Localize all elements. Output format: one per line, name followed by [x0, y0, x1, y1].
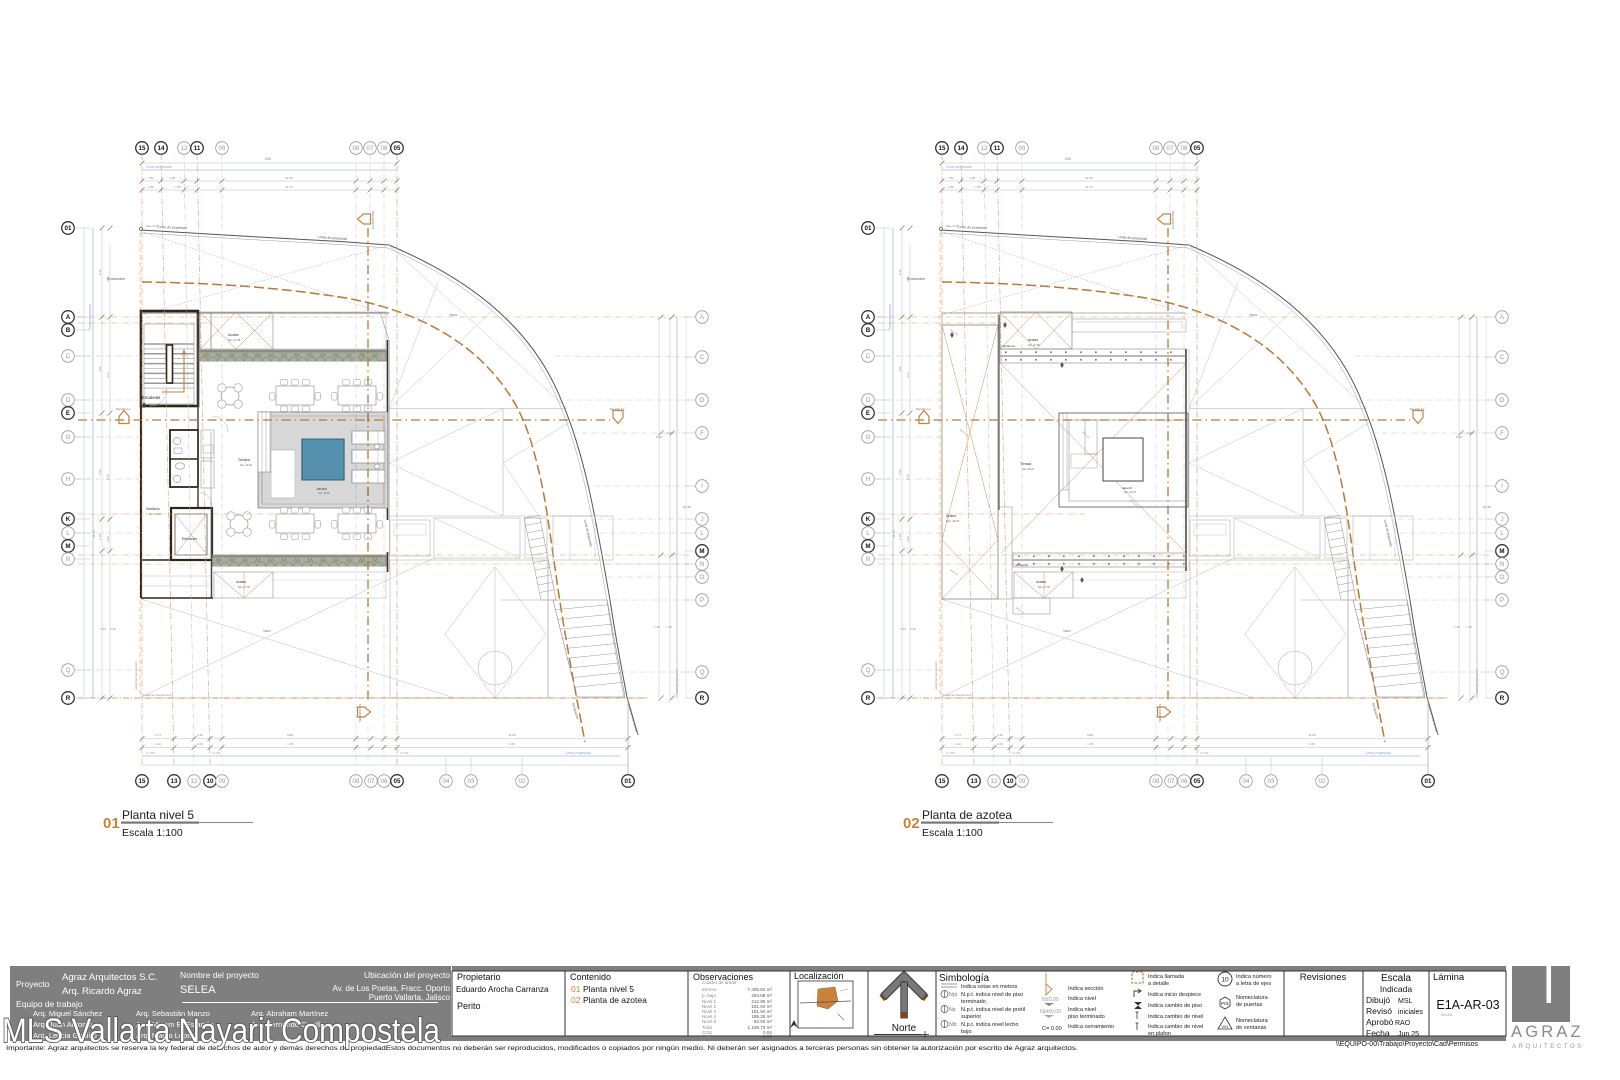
svg-text:1.56: 1.56	[148, 185, 154, 189]
svg-text:09: 09	[219, 145, 226, 152]
svg-text:Jacuzzi: Jacuzzi	[1122, 486, 1132, 490]
svg-text:Elevador: Elevador	[182, 537, 198, 541]
svg-text:H: H	[66, 476, 70, 483]
svg-text:Escala 1:100: Escala 1:100	[122, 827, 183, 839]
svg-text:2.20: 2.20	[906, 536, 910, 542]
svg-text:Jardinera: Jardinera	[1002, 344, 1015, 348]
svg-text:SELEA: SELEA	[180, 984, 216, 996]
svg-text:V01: V01	[1221, 1024, 1229, 1029]
svg-text:Revisiones: Revisiones	[1300, 972, 1347, 983]
svg-text:Indica número: Indica número	[1236, 974, 1271, 980]
svg-text:N.p.t. indica nivel lecho: N.p.t. indica nivel lecho	[961, 1022, 1019, 1028]
svg-text:J: J	[700, 516, 703, 523]
svg-text:Npt +16.20: Npt +16.20	[149, 513, 161, 516]
svg-text:G: G	[866, 434, 871, 441]
svg-text:R: R	[1500, 695, 1505, 702]
svg-text:R: R	[66, 695, 71, 702]
svg-text:Indica cotas en metros: Indica cotas en metros	[961, 984, 1017, 990]
svg-text:M: M	[865, 543, 870, 550]
svg-text:1.71: 1.71	[955, 733, 961, 737]
svg-text:Puerto Vallarta, Jalisco: Puerto Vallarta, Jalisco	[369, 993, 451, 1002]
svg-text:Lámina: Lámina	[1433, 972, 1465, 983]
svg-text:4.67: 4.67	[106, 276, 110, 282]
svg-text:Npt +16.20: Npt +16.20	[1022, 468, 1034, 471]
svg-text:01: 01	[65, 225, 72, 232]
svg-text:08: 08	[353, 145, 360, 152]
svg-text:L: L	[1500, 530, 1504, 537]
svg-text:F: F	[1500, 430, 1504, 437]
svg-text:11: 11	[994, 145, 1001, 152]
svg-text:1.78: 1.78	[287, 742, 293, 746]
svg-text:Npt: Npt	[949, 992, 958, 998]
svg-text:P: P	[1500, 597, 1504, 604]
svg-text:Revisó: Revisó	[1366, 1006, 1392, 1016]
svg-text:Equipo de trabajo: Equipo de trabajo	[16, 999, 83, 1009]
svg-text:terreno: terreno	[702, 987, 717, 992]
svg-text:J: J	[1500, 516, 1503, 523]
svg-text:Localización: Localización	[794, 971, 844, 981]
svg-text:de puertas: de puertas	[1236, 1002, 1263, 1008]
svg-text:A: A	[866, 314, 871, 321]
svg-text:5.31: 5.31	[898, 269, 902, 275]
svg-text:Linde de intervención: Linde de intervención	[943, 693, 972, 697]
svg-text:Npm +20.05: Npm +20.05	[946, 520, 960, 523]
svg-text:4.55: 4.55	[898, 366, 902, 372]
svg-text:9.95: 9.95	[287, 733, 293, 737]
svg-text:N: N	[866, 556, 870, 563]
svg-text:10: 10	[207, 778, 214, 785]
svg-text:Cotas progresivas: Cotas progresivas	[888, 304, 892, 330]
svg-text:12: 12	[191, 778, 198, 785]
svg-text:5.85: 5.85	[265, 157, 271, 161]
svg-text:F: F	[700, 430, 704, 437]
svg-text:09: 09	[219, 778, 226, 785]
svg-text:superior: superior	[961, 1014, 981, 1020]
svg-text:Npt +16.05: Npt +16.05	[318, 492, 330, 495]
svg-text:B: B	[66, 327, 71, 334]
svg-text:15: 15	[939, 778, 946, 785]
svg-text:p. baja: p. baja	[702, 993, 716, 998]
svg-text:I: I	[701, 483, 703, 490]
svg-text:Fecha: Fecha	[1366, 1028, 1390, 1038]
svg-text:H: H	[866, 476, 870, 483]
svg-text:N.p.t. indica nivel de pretil: N.p.t. indica nivel de pretil	[961, 1007, 1025, 1013]
svg-text:08: 08	[1153, 778, 1160, 785]
svg-text:Propietario: Propietario	[457, 972, 501, 982]
svg-text:7.46: 7.46	[900, 627, 906, 631]
svg-text:Vacío: Vacío	[1249, 313, 1258, 317]
svg-text:1.54: 1.54	[175, 185, 181, 189]
svg-text:Npt±0.00: Npt±0.00	[1040, 1009, 1061, 1015]
svg-text:B: B	[866, 327, 871, 334]
svg-text:Cotas progresivas: Cotas progresivas	[1365, 751, 1391, 755]
svg-text:MSL: MSL	[1398, 998, 1413, 1005]
svg-text:Perito: Perito	[457, 1001, 481, 1011]
svg-text:14: 14	[958, 145, 965, 152]
svg-text:O: O	[1500, 574, 1505, 581]
svg-text:N±0.00: N±0.00	[1042, 997, 1059, 1003]
svg-text:15: 15	[939, 145, 946, 152]
svg-text:13: 13	[171, 778, 178, 785]
svg-text:1.39: 1.39	[98, 534, 102, 540]
svg-text:C: C	[866, 353, 871, 360]
svg-text:5.31: 5.31	[98, 269, 102, 275]
svg-text:Norte: Norte	[892, 1023, 917, 1034]
svg-text:Escaleras: Escaleras	[142, 395, 160, 400]
svg-text:Nivel 5: Nivel 5	[702, 1019, 716, 1024]
svg-text:06: 06	[381, 778, 388, 785]
svg-text:L: L	[700, 530, 704, 537]
svg-text:K: K	[866, 516, 871, 523]
svg-text:Planta de azotea: Planta de azotea	[922, 808, 1012, 822]
svg-text:1.12: 1.12	[955, 742, 961, 746]
svg-text:N: N	[1500, 561, 1504, 568]
svg-text:2.19: 2.19	[197, 733, 203, 737]
svg-text:Terraza: Terraza	[238, 458, 250, 462]
svg-text:ARQUITECTOS: ARQUITECTOS	[1512, 1044, 1584, 1050]
svg-text:7.46: 7.46	[666, 625, 672, 629]
svg-text:Sección s-s: Sección s-s	[916, 407, 931, 411]
svg-text:M: M	[1499, 548, 1504, 555]
svg-text:13: 13	[971, 778, 978, 785]
svg-text:09: 09	[1019, 778, 1026, 785]
svg-text:9.31: 9.31	[667, 431, 673, 435]
svg-text:N: N	[66, 556, 70, 563]
svg-text:27.046: 27.046	[400, 751, 409, 755]
svg-text:D: D	[866, 397, 871, 404]
svg-text:Sección s-s: Sección s-s	[116, 407, 131, 411]
svg-text:RAO: RAO	[1395, 1020, 1411, 1027]
svg-text:MLS Vallarta Nayarit Compostel: MLS Vallarta Nayarit Compostela	[2, 1012, 440, 1050]
svg-text:en plafon: en plafon	[1148, 1031, 1171, 1037]
svg-text:11.73: 11.73	[285, 185, 293, 189]
svg-text:7.46: 7.46	[1454, 625, 1460, 629]
svg-text:M: M	[65, 543, 70, 550]
svg-text:1.50: 1.50	[169, 176, 175, 180]
svg-text:15: 15	[139, 778, 146, 785]
svg-text:4.55: 4.55	[98, 366, 102, 372]
svg-text:Npt +17.55: Npt +17.55	[228, 339, 241, 342]
svg-text:Azotea: Azotea	[1036, 580, 1046, 584]
svg-text:Azotea: Azotea	[946, 514, 956, 518]
svg-text:Escala: Escala	[1381, 973, 1411, 984]
svg-text:Nomeclatura: Nomeclatura	[1236, 995, 1269, 1001]
svg-text:1.56: 1.56	[948, 185, 954, 189]
svg-text:11.05: 11.05	[1308, 733, 1316, 737]
svg-text:terminado: terminado	[961, 999, 986, 1005]
svg-text:Planta nivel 5: Planta nivel 5	[122, 808, 194, 822]
svg-text:11: 11	[194, 145, 201, 152]
svg-text:2.00: 2.00	[197, 742, 203, 746]
svg-text:01: 01	[625, 778, 632, 785]
svg-text:Terraza: Terraza	[1020, 462, 1031, 466]
svg-text:SECCIÓN S-S: SECCIÓN S-S	[1171, 211, 1176, 229]
svg-text:E: E	[66, 410, 70, 417]
svg-text:a letra de ejes: a letra de ejes	[1236, 981, 1271, 987]
svg-text:8.45: 8.45	[1309, 742, 1315, 746]
svg-text:Planta de azotea: Planta de azotea	[583, 995, 647, 1005]
svg-text:7.46: 7.46	[110, 627, 116, 631]
svg-text:a detalle: a detalle	[1148, 981, 1169, 987]
svg-text:Vacío: Vacío	[449, 313, 458, 317]
svg-text:1.52: 1.52	[948, 176, 954, 180]
svg-text:N: N	[700, 561, 704, 568]
svg-text:Vacío: Vacío	[263, 629, 271, 633]
svg-text:Q: Q	[866, 667, 871, 674]
svg-text:Cotas progresivas: Cotas progresivas	[88, 304, 92, 330]
svg-text:12: 12	[181, 145, 188, 152]
svg-text:21.486: 21.486	[1012, 751, 1021, 755]
svg-text:Proyecto: Proyecto	[16, 979, 50, 989]
svg-text:10: 10	[1221, 977, 1229, 984]
svg-text:14: 14	[158, 145, 165, 152]
svg-text:R: R	[866, 695, 871, 702]
svg-text:07: 07	[1167, 145, 1174, 152]
svg-text:E1A-AR-03: E1A-AR-03	[1436, 998, 1499, 1012]
svg-text:15: 15	[139, 145, 146, 152]
svg-text:02: 02	[571, 995, 581, 1005]
svg-text:AGRAZ: AGRAZ	[1511, 1023, 1584, 1041]
svg-text:01: 01	[1425, 778, 1432, 785]
svg-text:Azotea: Azotea	[228, 333, 239, 337]
svg-text:Eduardo Arocha Carranza: Eduardo Arocha Carranza	[456, 985, 549, 994]
svg-text:Cotas progresivas: Cotas progresivas	[565, 751, 591, 755]
svg-text:Npt +16.20: Npt +16.20	[240, 464, 252, 467]
svg-text:01: 01	[103, 815, 120, 832]
svg-text:Npt +16.15: Npt +16.15	[1124, 491, 1136, 494]
svg-text:Ubicación del proyecto: Ubicación del proyecto	[364, 970, 450, 980]
svg-text:Agraz Arquitectos S.C.: Agraz Arquitectos S.C.	[62, 972, 158, 983]
svg-text:11.06: 11.06	[285, 176, 293, 180]
svg-text:11.06: 11.06	[1085, 176, 1093, 180]
svg-text:Aprobó: Aprobó	[1366, 1017, 1394, 1027]
svg-text:Q: Q	[1500, 669, 1505, 676]
svg-text:12: 12	[991, 778, 998, 785]
svg-text:23.48: 23.48	[683, 505, 691, 509]
svg-text:Dibujó: Dibujó	[1366, 995, 1390, 1005]
svg-text:Cotas progresivas: Cotas progresivas	[946, 165, 972, 169]
svg-text:Escala 1:100: Escala 1:100	[922, 827, 983, 839]
svg-text:08: 08	[353, 778, 360, 785]
svg-text:06: 06	[381, 145, 388, 152]
svg-text:Indica cambio de nivel: Indica cambio de nivel	[1148, 1014, 1203, 1020]
svg-text:7.46: 7.46	[100, 627, 106, 631]
svg-text:1.54: 1.54	[975, 185, 981, 189]
svg-text:9.95: 9.95	[1087, 733, 1093, 737]
svg-text:12: 12	[981, 145, 988, 152]
svg-text:Indica cambio de nivel: Indica cambio de nivel	[1148, 1024, 1203, 1030]
svg-text:Vacío: Vacío	[1063, 629, 1071, 633]
svg-text:Indica nivel: Indica nivel	[1068, 1007, 1096, 1013]
svg-text:Linde de intervención: Linde de intervención	[134, 661, 138, 690]
svg-text:10: 10	[1007, 778, 1014, 785]
svg-text:D: D	[1500, 397, 1505, 404]
svg-text:06: 06	[1181, 778, 1188, 785]
svg-text:6.40: 6.40	[106, 474, 110, 480]
svg-text:01: 01	[865, 225, 872, 232]
svg-text:7.46: 7.46	[654, 625, 660, 629]
svg-text:2.19: 2.19	[997, 733, 1003, 737]
svg-text:Indica cerramiento: Indica cerramiento	[1068, 1024, 1114, 1030]
svg-text:06: 06	[1181, 145, 1188, 152]
svg-text:07: 07	[368, 778, 375, 785]
svg-text:L: L	[866, 530, 870, 537]
svg-text:52.92 m²: 52.92 m²	[754, 1019, 773, 1024]
svg-text:17.366: 17.366	[946, 751, 955, 755]
svg-text:Cotas progresivas: Cotas progresivas	[675, 669, 679, 695]
svg-text:02: 02	[1319, 778, 1326, 785]
svg-text:1.71: 1.71	[155, 733, 161, 737]
svg-text:R: R	[700, 695, 705, 702]
svg-text:C: C	[1500, 354, 1505, 361]
svg-text:Indica nivel: Indica nivel	[1068, 996, 1096, 1002]
svg-text:de ventanas: de ventanas	[1236, 1025, 1267, 1031]
svg-text:1.39: 1.39	[898, 534, 902, 540]
svg-text:G: G	[66, 434, 71, 441]
svg-text:2.00: 2.00	[997, 742, 1003, 746]
svg-text:26.46: 26.46	[892, 530, 896, 538]
svg-text:Q: Q	[700, 669, 705, 676]
svg-text:CUS: CUS	[702, 1034, 712, 1039]
svg-text:Cotas progresivas: Cotas progresivas	[146, 165, 172, 169]
svg-text:1.12: 1.12	[155, 742, 161, 746]
svg-text:9.42: 9.42	[1456, 435, 1462, 439]
svg-text:SECCIÓN S-S: SECCIÓN S-S	[371, 211, 376, 229]
svg-text:Contenido: Contenido	[570, 972, 611, 982]
svg-text:17.366: 17.366	[146, 751, 155, 755]
svg-text:5.85: 5.85	[1065, 157, 1071, 161]
svg-text:C: C	[700, 354, 705, 361]
svg-text:Planta nivel 5: Planta nivel 5	[583, 984, 634, 994]
svg-text:08: 08	[1153, 145, 1160, 152]
svg-text:7.46: 7.46	[1466, 625, 1472, 629]
svg-text:02: 02	[519, 778, 526, 785]
svg-text:Sección s-s: Sección s-s	[610, 407, 625, 411]
svg-text:Simbología: Simbología	[939, 973, 989, 984]
svg-text:Cuadro de áreas: Cuadro de áreas	[702, 980, 737, 985]
svg-text:4.67: 4.67	[906, 276, 910, 282]
svg-text:21.486: 21.486	[212, 751, 221, 755]
svg-text:piso terminado: piso terminado	[1068, 1014, 1105, 1020]
svg-text:Vestíbulo: Vestíbulo	[146, 507, 160, 511]
svg-text:Linde de intervención: Linde de intervención	[934, 661, 938, 690]
svg-text:11.73: 11.73	[1085, 185, 1093, 189]
svg-text:D: D	[66, 397, 71, 404]
svg-text:Q: Q	[66, 667, 71, 674]
svg-text:04: 04	[443, 778, 450, 785]
svg-text:SECCIÓN S-S: SECCIÓN S-S	[1157, 704, 1162, 722]
svg-text:04: 04	[1243, 778, 1250, 785]
svg-text:07: 07	[1168, 778, 1175, 785]
svg-text:05: 05	[394, 778, 401, 785]
svg-text:P: P	[700, 597, 704, 604]
svg-text:Npt +17.55: Npt +17.55	[1038, 586, 1050, 589]
svg-text:C: C	[66, 353, 71, 360]
svg-text:Arq. Ricardo Agraz: Arq. Ricardo Agraz	[62, 986, 142, 997]
svg-text:Jacuzzi: Jacuzzi	[316, 487, 327, 491]
svg-text:4.67: 4.67	[106, 372, 110, 378]
svg-text:Indicada: Indicada	[1380, 984, 1412, 994]
svg-text:23.48: 23.48	[1483, 505, 1491, 509]
svg-text:05: 05	[394, 145, 401, 152]
svg-text:2.20: 2.20	[106, 536, 110, 542]
svg-text:07: 07	[367, 145, 374, 152]
svg-text:03: 03	[1268, 778, 1275, 785]
svg-text:L: L	[66, 530, 70, 537]
svg-text:SECCIÓN S-S: SECCIÓN S-S	[357, 704, 362, 722]
svg-text:O: O	[700, 574, 705, 581]
svg-text:9.42: 9.42	[656, 435, 662, 439]
svg-text:Nlb: Nlb	[949, 1022, 957, 1028]
svg-text:Indica cambio de piso: Indica cambio de piso	[1148, 1003, 1202, 1009]
svg-text:SELEA: SELEA	[1441, 1013, 1453, 1017]
svg-text:1.78: 1.78	[1087, 742, 1093, 746]
svg-text:\\EQUIPO-00\Trabajo\Proyecto\C: \\EQUIPO-00\Trabajo\Proyecto\Cad\Permiso…	[1336, 1041, 1479, 1048]
svg-text:03: 03	[468, 778, 475, 785]
svg-text:294.68 m²: 294.68 m²	[751, 993, 772, 998]
svg-text:Indica llamada: Indica llamada	[1148, 974, 1185, 980]
svg-text:I: I	[1501, 483, 1503, 490]
svg-text:Nombre del proyecto: Nombre del proyecto	[180, 970, 259, 980]
svg-text:iniciales: iniciales	[1398, 1009, 1423, 1016]
svg-text:Jardinera: Jardinera	[1015, 563, 1028, 567]
svg-text:Sección s-s: Sección s-s	[1410, 407, 1425, 411]
svg-text:7,406.84 m²: 7,406.84 m²	[747, 987, 772, 992]
svg-text:E: E	[866, 410, 870, 417]
svg-text:8.45: 8.45	[509, 742, 515, 746]
svg-text:0.09: 0.09	[763, 1034, 772, 1039]
svg-text:Nomeclatura: Nomeclatura	[1236, 1018, 1269, 1024]
svg-text:6.40: 6.40	[906, 474, 910, 480]
svg-text:M: M	[699, 548, 704, 555]
svg-text:A: A	[66, 314, 71, 321]
svg-text:6.55: 6.55	[898, 469, 902, 475]
svg-text:11.05: 11.05	[508, 733, 516, 737]
svg-text:09: 09	[1019, 145, 1026, 152]
svg-text:Cotas progresivas: Cotas progresivas	[1475, 669, 1479, 695]
svg-text:01: 01	[571, 984, 581, 994]
svg-text:7.46: 7.46	[910, 627, 916, 631]
svg-text:Azotea: Azotea	[236, 580, 246, 584]
svg-text:6.55: 6.55	[98, 469, 102, 475]
svg-text:Npt +17.55: Npt +17.55	[1028, 344, 1040, 347]
svg-text:27.046: 27.046	[1200, 751, 1209, 755]
svg-text:26.46: 26.46	[92, 530, 96, 538]
svg-text:05: 05	[1194, 145, 1201, 152]
svg-text:Azotea: Azotea	[1028, 338, 1038, 342]
svg-text:05: 05	[1194, 778, 1201, 785]
svg-text:C= 0.00: C= 0.00	[1042, 1026, 1062, 1032]
svg-text:9.31: 9.31	[1467, 431, 1473, 435]
svg-text:4.67: 4.67	[906, 372, 910, 378]
svg-text:Npt +17.55: Npt +17.55	[238, 586, 250, 589]
svg-text:bajo: bajo	[961, 1029, 972, 1035]
svg-text:P01: P01	[1221, 1001, 1230, 1006]
svg-text:Linde de intervención: Linde de intervención	[143, 693, 172, 697]
svg-text:N.p.t. indica nivel de piso: N.p.t. indica nivel de piso	[961, 992, 1023, 998]
svg-text:Jun 25: Jun 25	[1398, 1031, 1419, 1038]
svg-text:Indica sección: Indica sección	[1068, 986, 1103, 992]
svg-text:Av. de Los Poetas, Fracc. Opor: Av. de Los Poetas, Fracc. Oporto	[332, 984, 450, 993]
svg-text:02: 02	[903, 815, 920, 832]
svg-text:Np: Np	[949, 1007, 956, 1013]
svg-text:1.52: 1.52	[148, 176, 154, 180]
svg-text:1.50: 1.50	[969, 176, 975, 180]
svg-text:D: D	[700, 397, 705, 404]
svg-text:K: K	[66, 516, 71, 523]
svg-text:Indica inicio despiece: Indica inicio despiece	[1148, 992, 1201, 998]
